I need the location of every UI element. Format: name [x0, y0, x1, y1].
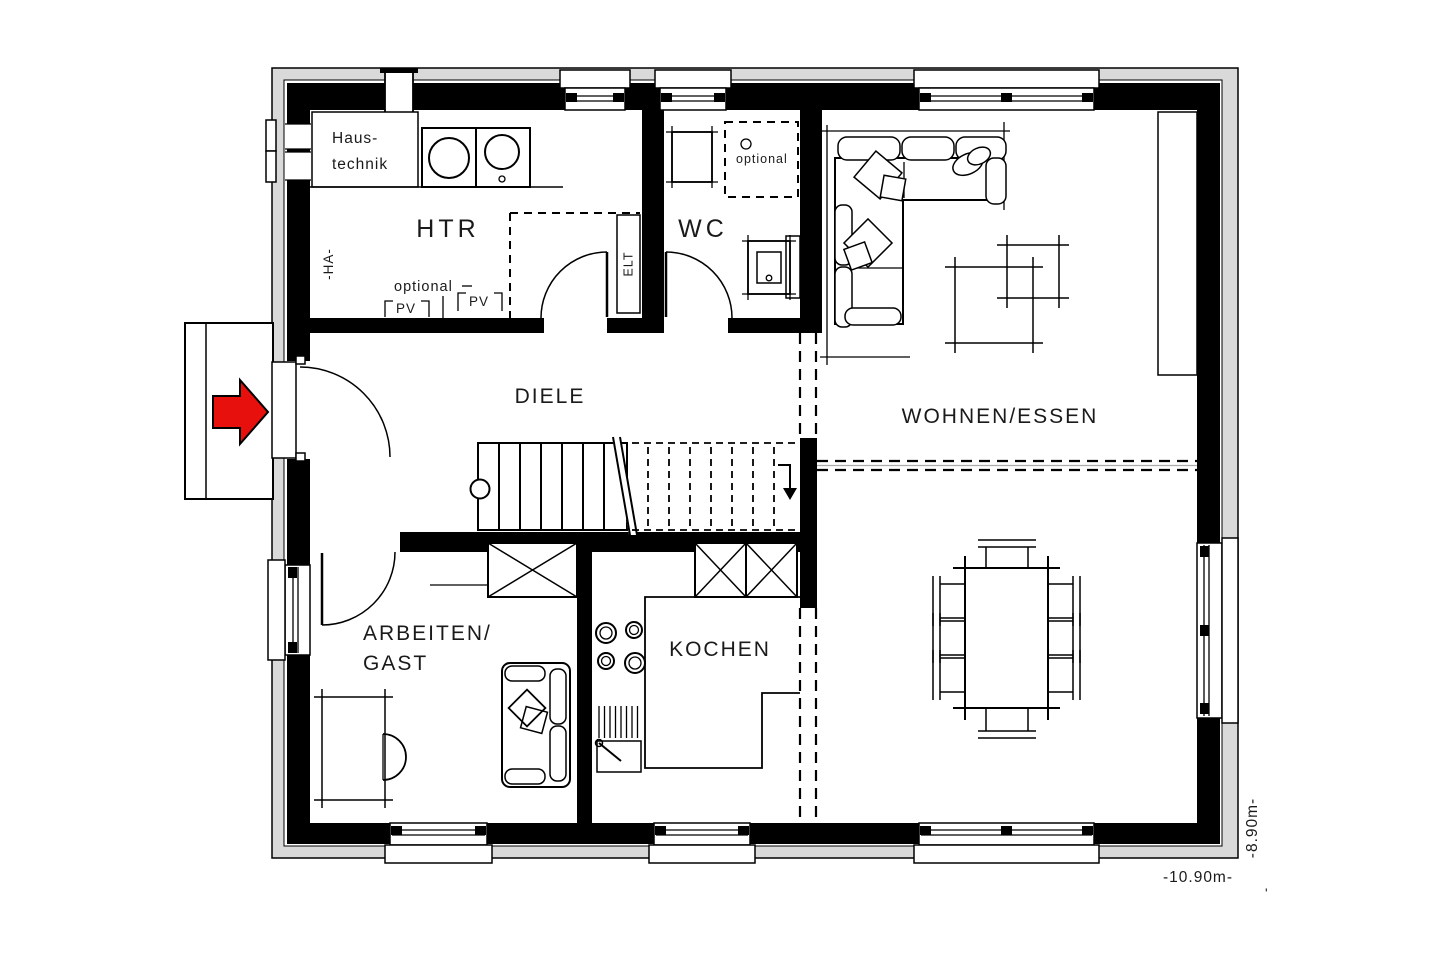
wall-wc-wohnen	[800, 110, 822, 333]
window-bottom-living	[914, 823, 1099, 863]
window-bottom-kitchen	[649, 823, 755, 863]
stray-mark: '	[1265, 886, 1269, 901]
laundry-appliances	[422, 128, 530, 187]
elt-cabinet: ELT	[617, 215, 640, 313]
entrance-door-leaf	[272, 362, 296, 458]
window-right-living	[1197, 538, 1238, 723]
kitchen-tall-units	[695, 543, 797, 597]
guest-daybed	[502, 663, 570, 787]
room-label-arbeiten: ARBEITEN/	[363, 622, 492, 645]
window-top-living	[914, 70, 1099, 110]
room-label-htr: HTR	[416, 215, 479, 243]
chimney-flue	[380, 68, 418, 112]
wall-shaft	[1158, 112, 1197, 375]
haustechnik-line1: Haus-	[332, 130, 378, 147]
room-label-wohnen-essen: WOHNEN/ESSEN	[902, 405, 1099, 428]
stair-newel	[471, 480, 490, 499]
ha-label: -HA-	[321, 248, 336, 280]
optional-wc-label: optional	[736, 152, 788, 166]
floor-plan: Haus- technik ELT optional PV PV -HA-	[0, 0, 1456, 971]
room-label-gast: GAST	[363, 652, 428, 675]
dimension-height: -8.90m-	[1244, 798, 1261, 858]
haustechnik-label-box: Haus- technik	[312, 112, 418, 187]
dimension-width: -10.90m-	[1163, 869, 1233, 886]
wall-stairs	[800, 438, 817, 608]
optional-htr-label: optional	[394, 279, 453, 295]
window-top-htr	[560, 70, 630, 110]
window-top-wc	[655, 70, 731, 110]
wall-wc-diele	[728, 318, 800, 333]
elt-label: ELT	[622, 252, 636, 277]
room-label-kochen: KOCHEN	[669, 638, 771, 661]
wall-gast-kochen	[577, 552, 592, 823]
room-label-diele: DIELE	[515, 385, 586, 408]
haustechnik-line2: technik	[332, 156, 388, 173]
pv-right-label: PV	[469, 294, 489, 309]
window-bottom-guest	[385, 823, 492, 863]
pv-left-label: PV	[396, 301, 416, 316]
dining-table	[953, 556, 1060, 720]
room-label-wc: WC	[678, 215, 728, 243]
window-left-guest	[268, 560, 310, 660]
wall-htr-wc	[642, 110, 664, 333]
wall-htr-diele	[310, 318, 544, 333]
